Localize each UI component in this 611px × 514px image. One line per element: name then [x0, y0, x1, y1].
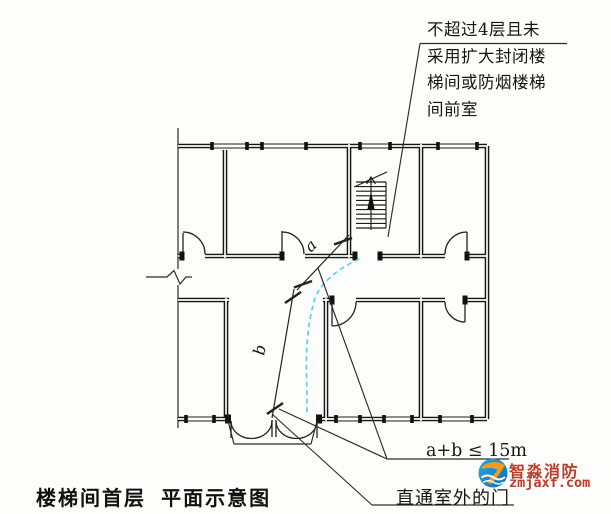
staircase-icon [354, 172, 387, 230]
escape-path [306, 259, 359, 416]
stair-note-line-3: 梯间或防烟楼梯 [427, 70, 579, 97]
fire-code-floor-plan-figure: 不超过4层且未 采用扩大封闭楼 梯间或防烟楼梯 间前室 a+b ≤ 15m 直通… [0, 0, 611, 514]
window-jambs [184, 142, 479, 423]
stair-note-line-1: 不超过4层且未 [427, 17, 579, 44]
windows [186, 144, 477, 421]
stair-note-annotation: 不超过4层且未 采用扩大封闭楼 梯间或防烟楼梯 间前室 [427, 17, 579, 123]
stair-note-line-2: 采用扩大封闭楼 [427, 44, 579, 71]
stair-note-line-4: 间前室 [427, 97, 579, 124]
entrance-double-door [231, 420, 317, 439]
figure-caption: 楼梯间首层 平面示意图 [36, 482, 271, 511]
watermark-site-text: zmjaxf.com [509, 475, 590, 491]
break-line-symbol [146, 269, 192, 285]
exterior-door-label: 直通室外的门 [396, 484, 510, 510]
